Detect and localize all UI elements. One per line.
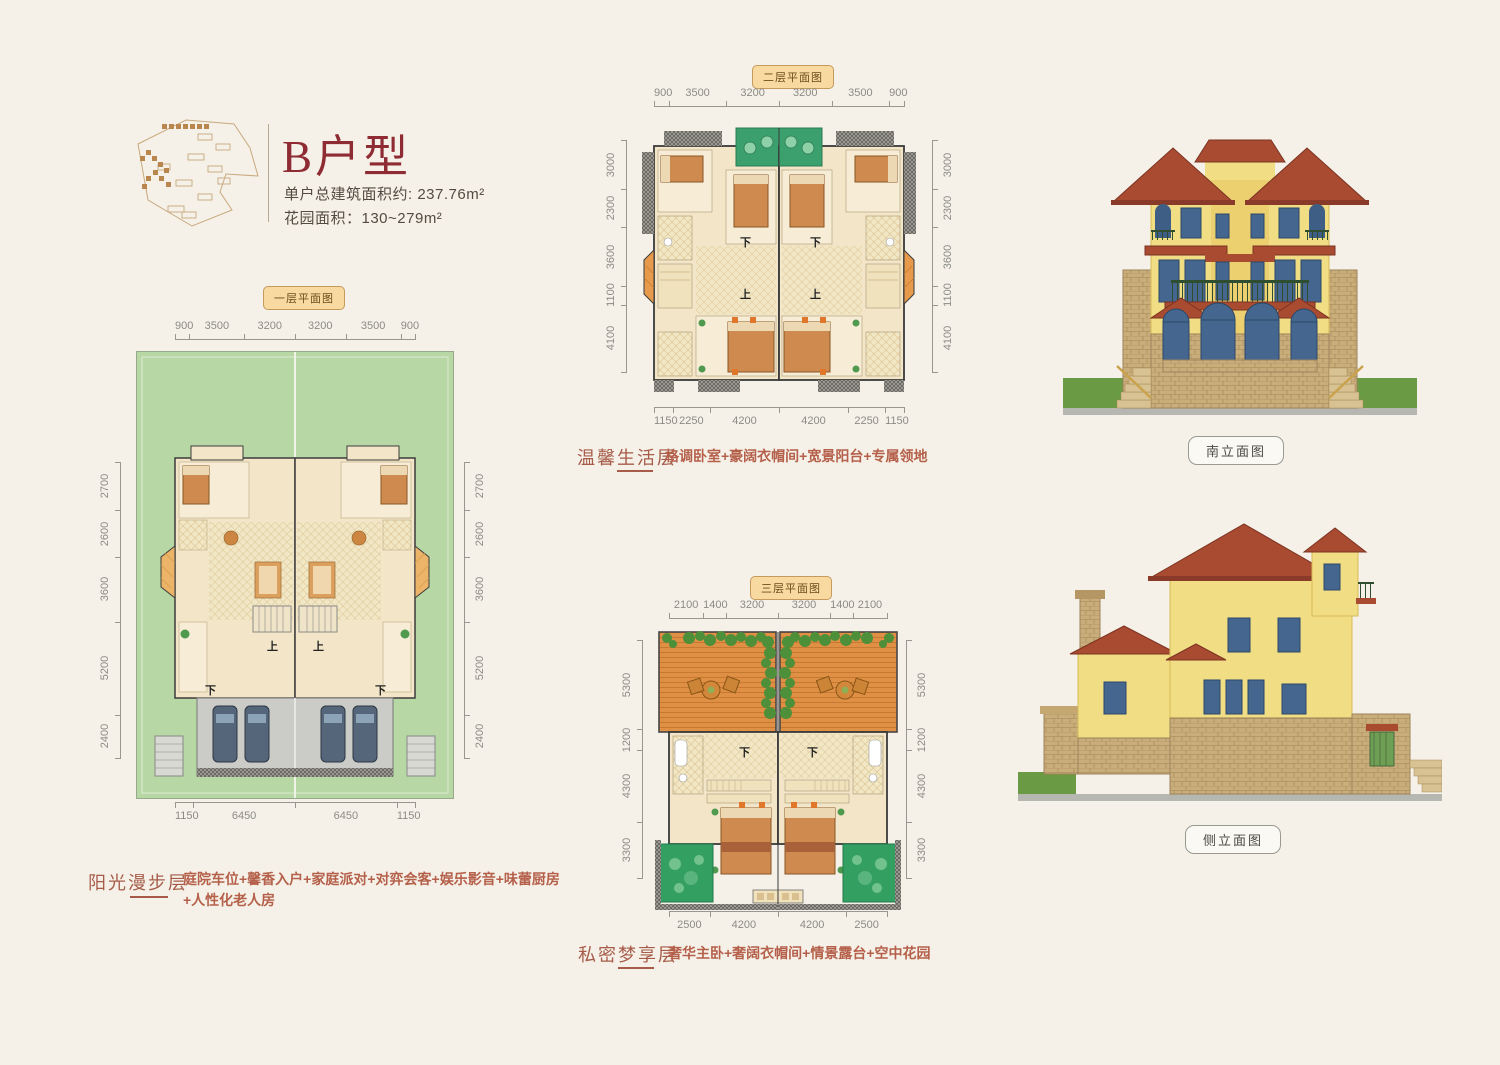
floor3-badge: 三层平面图 [750, 576, 832, 600]
south-elevation [1055, 120, 1425, 422]
total-area-text: 单户总建筑面积约: 237.76m² [284, 183, 485, 204]
dim-label: 3200 [295, 320, 346, 332]
dim-label: 4300 [621, 774, 633, 798]
dimension-line [669, 911, 887, 918]
dim-label: 4100 [605, 326, 617, 350]
dim-label: 3500 [832, 87, 890, 99]
floor1-left-unit [161, 446, 295, 698]
stair-down-label: 下 [205, 684, 216, 697]
dim-label: 1150 [885, 415, 904, 427]
stair-up-label: 上 [810, 287, 821, 301]
dim-label: 1200 [916, 727, 928, 751]
dim-label: 1150 [397, 810, 415, 822]
dimension-line [175, 333, 415, 340]
floor3-plan: 下 下 [655, 628, 901, 910]
dim-label: 2300 [942, 196, 954, 220]
floor1-badge: 一层平面图 [263, 286, 345, 310]
dim-label: 1100 [605, 284, 617, 308]
dimension-line [906, 640, 913, 878]
dim-label: 4100 [942, 326, 954, 350]
dim-label: 4200 [710, 919, 778, 931]
floor1-left-dimensions: 2700 2600 3600 5200 2400 [96, 462, 121, 758]
dim-label: 2700 [99, 474, 111, 498]
garden-area-text: 花园面积：130~279m² [284, 207, 442, 228]
floor3-top-dimensions: 2100 1400 3200 3200 1400 2100 [669, 599, 887, 619]
dim-label: 3600 [99, 577, 111, 601]
dim-label: 900 [889, 87, 904, 99]
floor2-plan: 下 上 下 上 [640, 118, 918, 406]
floor2-badge: 二层平面图 [752, 65, 834, 89]
floor3-bottom-dimensions: 2500 4200 4200 2500 [669, 911, 887, 931]
dim-label: 2100 [669, 599, 703, 611]
floor1-bottom-dimensions: 1150 6450 6450 1150 [175, 802, 415, 822]
floor2-left-unit [642, 128, 779, 392]
stair-up-label: 上 [740, 287, 751, 301]
floor1-features-line1: 庭院车位+馨香入户+家庭派对+对弈会客+娱乐影音+味蕾厨房 [183, 869, 560, 890]
dim-label: 5200 [99, 656, 111, 680]
key-map-building-outlines [158, 134, 230, 218]
dimension-line [114, 462, 121, 758]
floor2-right-unit [779, 128, 916, 392]
dim-label: 1150 [175, 810, 193, 822]
floor2-right-dimensions: 3000 2300 3600 1100 4100 [932, 140, 957, 372]
floor1-features: 庭院车位+馨香入户+家庭派对+对弈会客+娱乐影音+味蕾厨房 +人性化老人房 [183, 869, 560, 911]
dim-label: 1400 [703, 599, 726, 611]
dim-label: 2600 [474, 522, 486, 546]
ground-line [1063, 408, 1417, 415]
floor3-features: 奢华主卧+奢阔衣帽间+情景露台+空中花园 [668, 943, 931, 964]
floor1-plan: 上 上 下 下 [135, 350, 455, 800]
dim-label: 900 [401, 320, 415, 332]
dim-label: 5300 [621, 672, 633, 696]
dim-label: 3500 [346, 320, 401, 332]
brochure-page: B户型 单户总建筑面积约: 237.76m² 花园面积：130~279m² 二层… [0, 0, 1500, 1065]
dim-label: 2250 [673, 415, 710, 427]
floor2-top-dimensions: 900 3500 3200 3200 3500 900 [654, 87, 904, 107]
dim-label: 2700 [474, 474, 486, 498]
dim-label: 4200 [710, 415, 779, 427]
floor1-top-dimensions: 900 3500 3200 3200 3500 900 [175, 320, 415, 340]
floor3-left-dimensions: 5300 1200 4300 3300 [618, 640, 643, 878]
dim-label: 3500 [669, 87, 727, 99]
site-key-map [128, 114, 264, 234]
dim-label: 3200 [726, 87, 779, 99]
floor2-layer-underline [617, 470, 653, 472]
dim-label: 3300 [621, 838, 633, 862]
dim-label: 2400 [474, 724, 486, 748]
dim-label: 3200 [726, 599, 778, 611]
dim-label: 2500 [846, 919, 887, 931]
dim-label: 6450 [193, 810, 295, 822]
dim-label: 900 [654, 87, 669, 99]
dim-label: 3500 [189, 320, 244, 332]
dimension-line [464, 462, 471, 758]
dim-label: 4300 [916, 774, 928, 798]
dimension-line [620, 140, 627, 372]
dimension-line [669, 612, 887, 619]
floor3-right-unit [778, 631, 901, 910]
dim-label: 3600 [605, 245, 617, 269]
dim-label: 2250 [848, 415, 885, 427]
side-elevation [1018, 498, 1442, 810]
south-elevation-badge: 南立面图 [1188, 436, 1284, 465]
dim-label: 3300 [916, 838, 928, 862]
dim-label: 5200 [474, 656, 486, 680]
dim-label: 3000 [605, 152, 617, 176]
dim-label: 4200 [778, 919, 846, 931]
dim-label: 3000 [942, 152, 954, 176]
floor2-layer-name: 温馨生活层 [577, 444, 677, 470]
floor2-left-dimensions: 3000 2300 3600 1100 4100 [602, 140, 627, 372]
dim-label: 3200 [779, 87, 832, 99]
dimension-line [654, 100, 904, 107]
dim-label: 3200 [244, 320, 295, 332]
dim-label: 1150 [654, 415, 673, 427]
dim-label: 3600 [942, 245, 954, 269]
floor1-layer-name: 阳光漫步层 [88, 869, 188, 895]
dim-label: 1100 [942, 284, 954, 308]
dim-label: 2300 [605, 196, 617, 220]
side-elevation-badge: 侧立面图 [1185, 825, 1281, 854]
dim-label: 2500 [669, 919, 710, 931]
floor3-right-dimensions: 5300 1200 4300 3300 [906, 640, 931, 878]
dim-label: 1200 [621, 727, 633, 751]
dim-label: 3600 [474, 577, 486, 601]
floor1-right-unit [295, 446, 429, 698]
stair-up-label: 上 [313, 639, 324, 653]
dimension-line [636, 640, 643, 878]
dimension-line [932, 140, 939, 372]
dimension-line [654, 407, 904, 414]
stair-down-label: 下 [375, 684, 386, 697]
floor3-layer-underline [618, 967, 654, 969]
dim-label: 5300 [916, 672, 928, 696]
unit-type-title: B户型 [282, 120, 411, 185]
floor1-features-line2: +人性化老人房 [183, 890, 560, 911]
dim-label: 2400 [99, 724, 111, 748]
dim-label: 900 [175, 320, 189, 332]
dim-label: 2100 [853, 599, 887, 611]
floor2-features: 格调卧室+豪阔衣帽间+宽景阳台+专属领地 [665, 446, 928, 467]
dim-label: 6450 [295, 810, 397, 822]
dim-label: 1400 [830, 599, 853, 611]
floor1-right-dimensions: 2700 2600 3600 5200 2400 [464, 462, 489, 758]
stair-down-label: 下 [740, 236, 751, 249]
floor3-left-unit [655, 631, 778, 910]
stair-down-label: 下 [739, 746, 750, 759]
dimension-line [175, 802, 415, 809]
title-divider [268, 124, 269, 222]
dim-label: 4200 [779, 415, 848, 427]
hill-steps [1410, 760, 1442, 792]
ground-line [1018, 794, 1442, 801]
stair-down-label: 下 [810, 236, 821, 249]
stair-up-label: 上 [267, 639, 278, 653]
floor1-layer-underline [130, 896, 168, 898]
dim-label: 2600 [99, 522, 111, 546]
floor2-bottom-dimensions: 1150 2250 4200 4200 2250 1150 [654, 407, 904, 427]
dim-label: 3200 [778, 599, 830, 611]
stair-down-label: 下 [807, 746, 818, 759]
floor3-layer-name: 私密梦享层 [578, 941, 678, 967]
